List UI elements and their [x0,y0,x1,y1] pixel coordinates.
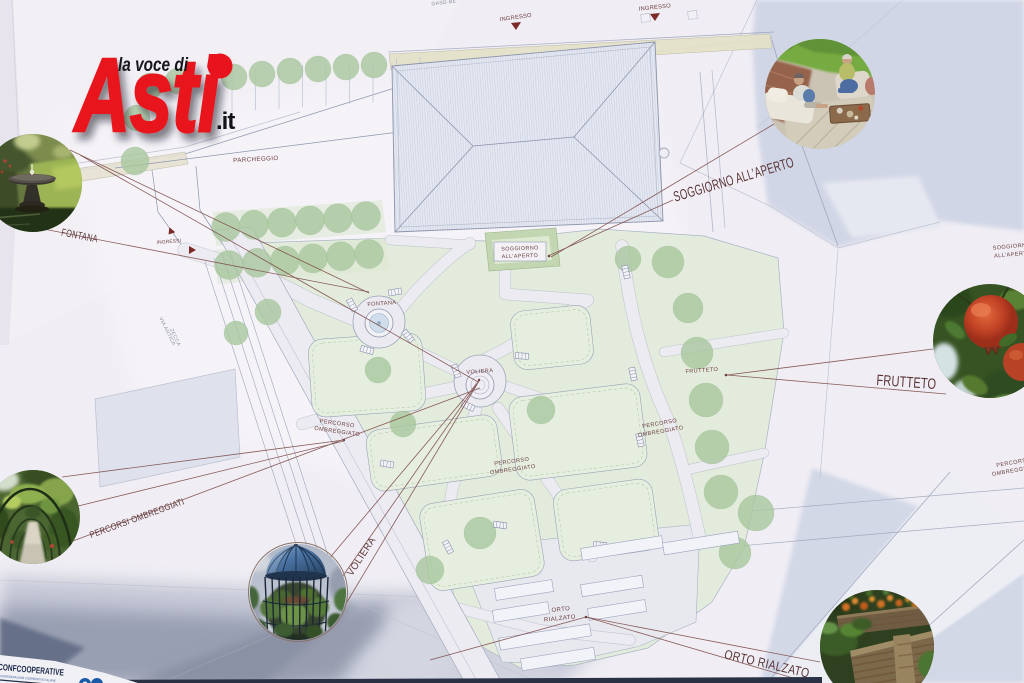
svg-text:ALL’APERTO: ALL’APERTO [502,253,539,260]
svg-text:la voce di: la voce di [118,55,189,76]
svg-text:.it: .it [216,108,235,135]
